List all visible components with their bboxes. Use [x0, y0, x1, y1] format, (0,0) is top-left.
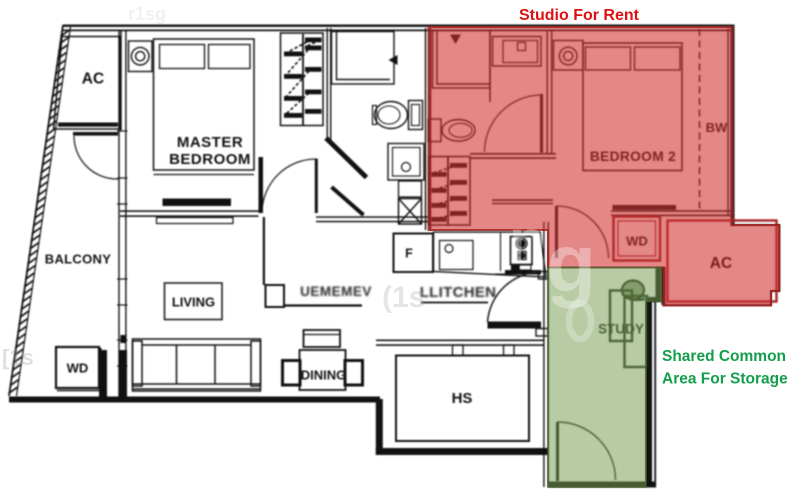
svg-text:(1s: (1s [382, 281, 425, 314]
svg-text:Area For Storage: Area For Storage [662, 371, 788, 388]
svg-text:n: n [509, 208, 546, 275]
svg-text:[1s: [1s [2, 345, 34, 370]
svg-text:g: g [546, 218, 596, 309]
svg-text:Shared Common: Shared Common [662, 348, 786, 365]
svg-text:r1sg: r1sg [128, 4, 166, 24]
svg-text:Studio For Rent: Studio For Rent [519, 7, 640, 24]
